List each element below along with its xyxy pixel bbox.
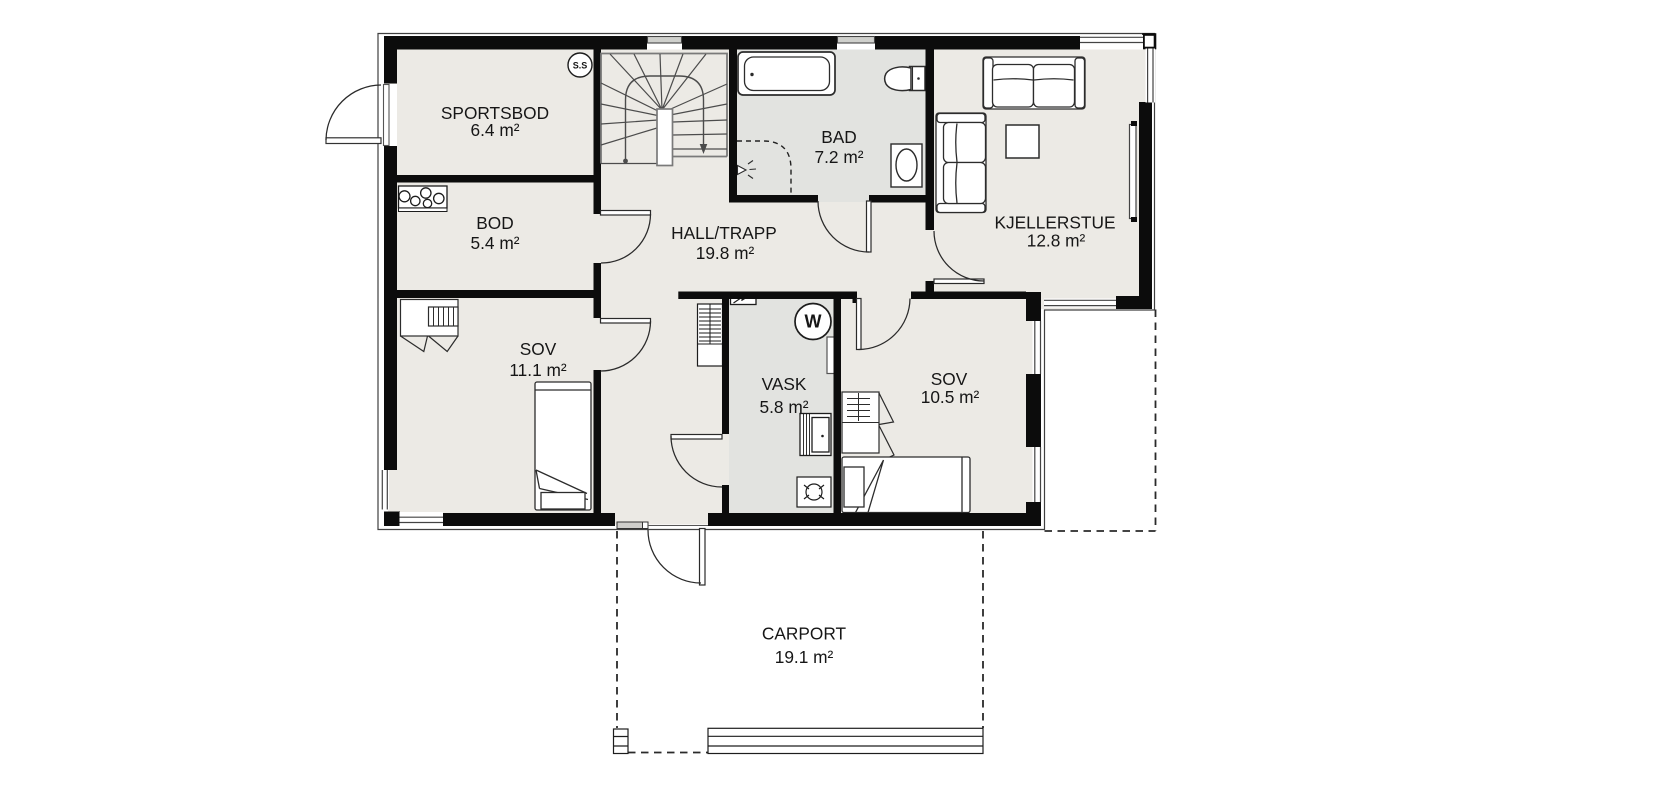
- svg-text:SOV: SOV: [931, 369, 968, 389]
- svg-text:SOV: SOV: [520, 339, 557, 359]
- svg-text:5.4 m²: 5.4 m²: [471, 233, 520, 253]
- svg-text:7.2 m²: 7.2 m²: [815, 147, 864, 167]
- svg-text:VASK: VASK: [762, 374, 807, 394]
- svg-text:19.8 m²: 19.8 m²: [696, 243, 755, 263]
- svg-text:BAD: BAD: [821, 127, 857, 147]
- svg-text:W: W: [805, 312, 822, 332]
- svg-text:19.1 m²: 19.1 m²: [775, 647, 834, 667]
- svg-text:BOD: BOD: [476, 213, 513, 233]
- svg-text:S.S: S.S: [573, 61, 588, 71]
- svg-text:10.5 m²: 10.5 m²: [921, 387, 980, 407]
- svg-text:KJELLERSTUE: KJELLERSTUE: [994, 213, 1115, 233]
- svg-text:CARPORT: CARPORT: [762, 624, 847, 644]
- svg-text:HALL/TRAPP: HALL/TRAPP: [671, 223, 777, 243]
- svg-text:12.8 m²: 12.8 m²: [1027, 231, 1086, 251]
- svg-text:6.4 m²: 6.4 m²: [471, 120, 520, 140]
- svg-text:11.1 m²: 11.1 m²: [509, 360, 567, 380]
- svg-text:5.8 m²: 5.8 m²: [760, 397, 809, 417]
